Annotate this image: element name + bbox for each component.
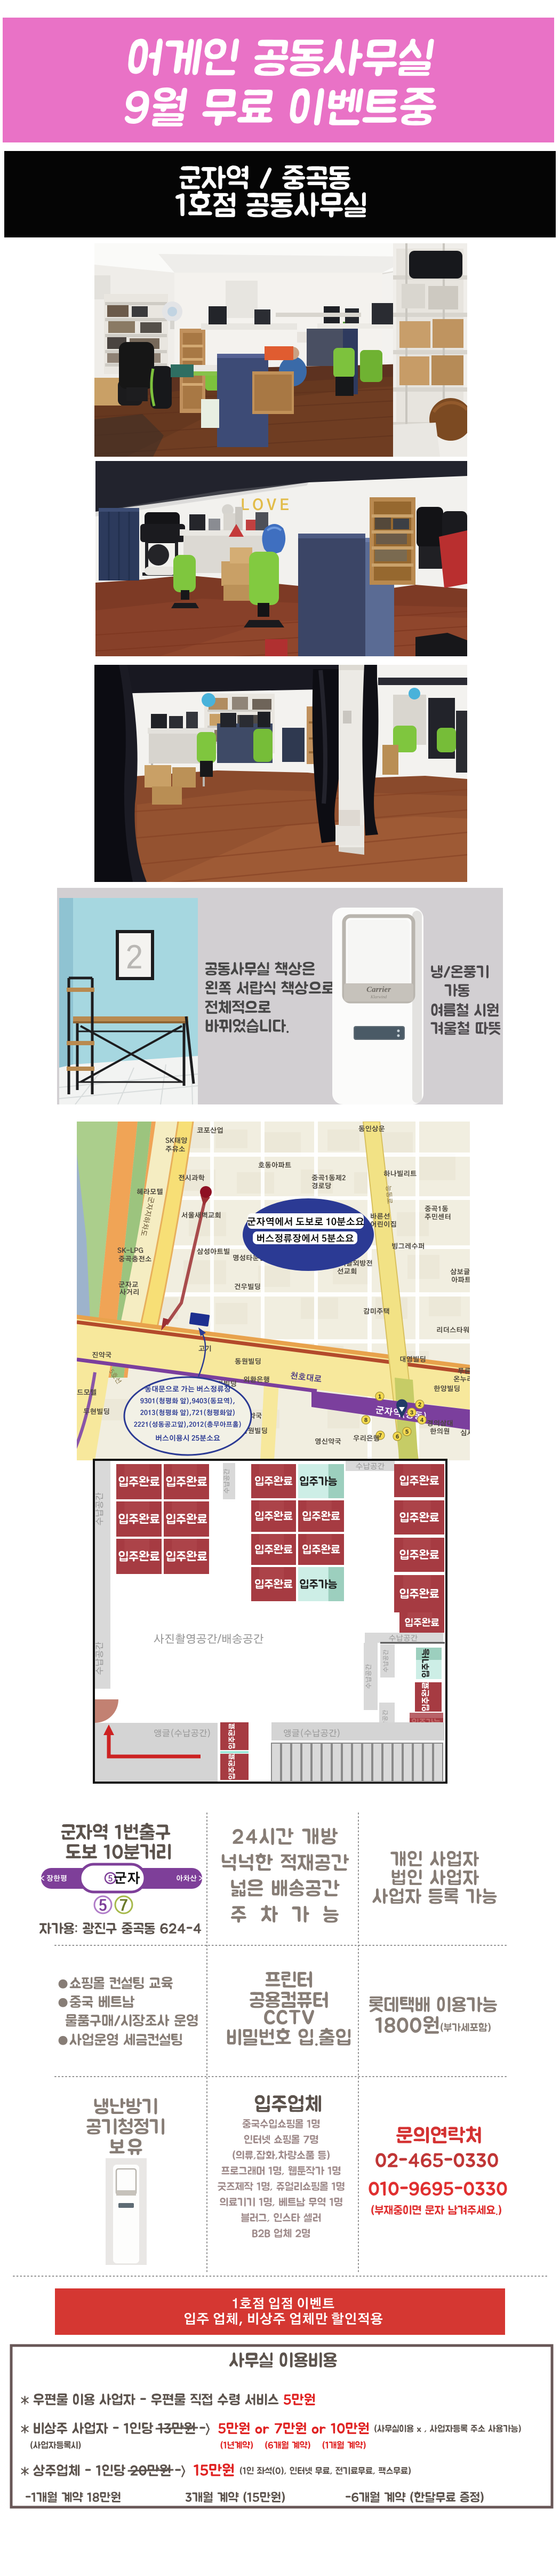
svg-text:7: 7 xyxy=(379,1433,382,1439)
svg-text:8: 8 xyxy=(364,1417,367,1424)
svg-text:3: 3 xyxy=(410,1410,413,1416)
svg-text:2: 2 xyxy=(418,1402,421,1408)
svg-text:Carrier: Carrier xyxy=(366,985,391,994)
svg-text:Klarwind: Klarwind xyxy=(370,995,387,999)
svg-text:5: 5 xyxy=(405,1429,409,1435)
svg-text:4: 4 xyxy=(420,1417,424,1424)
svg-text:1: 1 xyxy=(378,1394,381,1400)
svg-text:6: 6 xyxy=(396,1434,399,1440)
